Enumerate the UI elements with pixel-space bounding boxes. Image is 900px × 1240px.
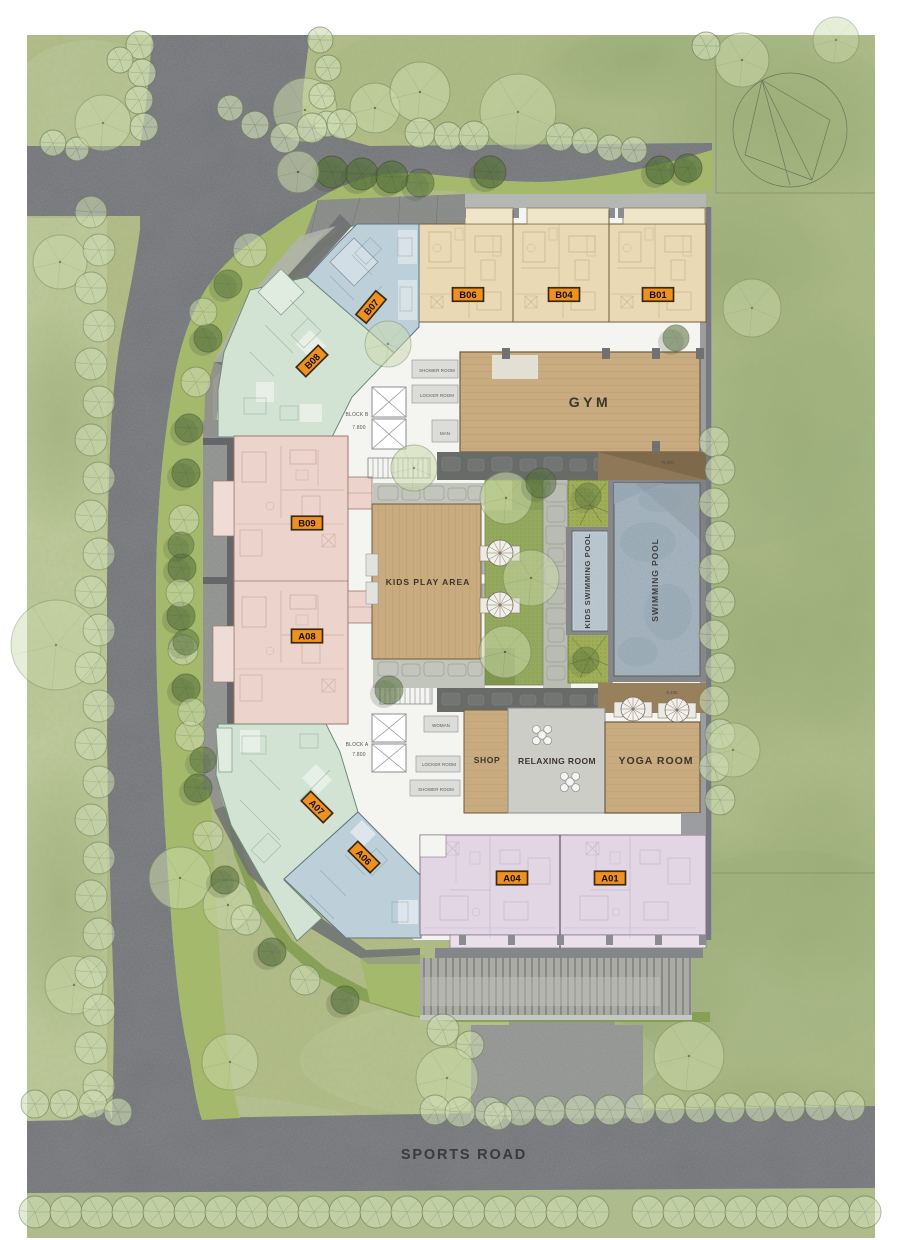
svg-text:SWIMMING POOL: SWIMMING POOL bbox=[650, 538, 660, 621]
svg-text:A01: A01 bbox=[601, 874, 619, 885]
svg-text:B01: B01 bbox=[649, 290, 667, 301]
svg-text:KIDS PLAY AREA: KIDS PLAY AREA bbox=[386, 577, 471, 587]
svg-text:GYM: GYM bbox=[569, 394, 611, 410]
svg-text:SHOWER ROOM: SHOWER ROOM bbox=[419, 368, 455, 373]
svg-text:YOGA ROOM: YOGA ROOM bbox=[618, 755, 693, 767]
svg-text:SHOWER ROOM: SHOWER ROOM bbox=[418, 787, 454, 792]
svg-text:BLOCK B: BLOCK B bbox=[345, 412, 369, 418]
svg-text:7.800: 7.800 bbox=[352, 425, 366, 431]
svg-text:A04: A04 bbox=[503, 874, 521, 885]
svg-text:A08: A08 bbox=[298, 632, 315, 643]
svg-text:KIDS SWIMMING POOL: KIDS SWIMMING POOL bbox=[583, 533, 592, 628]
svg-text:7.800: 7.800 bbox=[352, 752, 366, 758]
svg-text:B04: B04 bbox=[555, 290, 573, 301]
svg-text:B09: B09 bbox=[298, 519, 315, 530]
svg-text:RELAXING ROOM: RELAXING ROOM bbox=[518, 756, 596, 766]
svg-text:LOCKER ROOM: LOCKER ROOM bbox=[422, 762, 456, 767]
svg-text:SHOP: SHOP bbox=[474, 755, 501, 765]
svg-text:MAN: MAN bbox=[440, 431, 450, 436]
svg-text:BLOCK A: BLOCK A bbox=[346, 742, 369, 748]
svg-text:R.400: R.400 bbox=[662, 460, 674, 465]
svg-text:B06: B06 bbox=[459, 290, 476, 301]
svg-text:SPORTS ROAD: SPORTS ROAD bbox=[401, 1147, 527, 1163]
svg-text:8.400: 8.400 bbox=[667, 690, 679, 695]
svg-text:WOMAN: WOMAN bbox=[432, 723, 450, 728]
svg-text:LOCKER ROOM: LOCKER ROOM bbox=[420, 393, 454, 398]
